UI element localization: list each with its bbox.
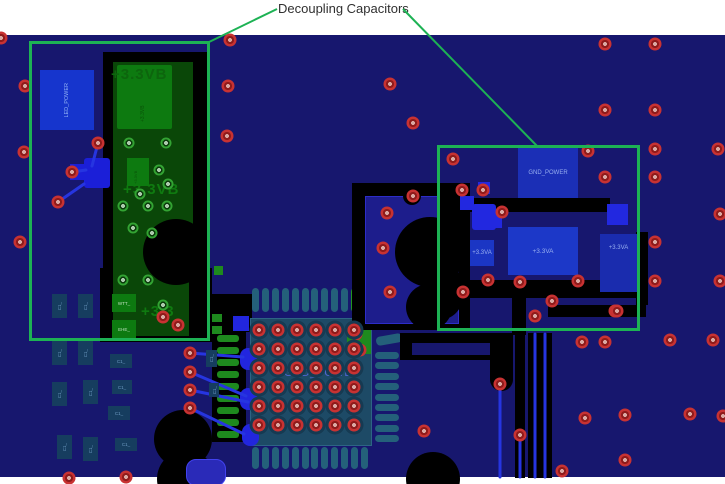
component-ref-text: C1_ (57, 349, 62, 357)
via-red (494, 378, 507, 391)
via-bga (291, 343, 304, 356)
via-red (649, 143, 662, 156)
via-red (221, 130, 234, 143)
pad-capsule (262, 288, 269, 312)
via-red (649, 104, 662, 117)
via-bga (272, 419, 285, 432)
pad-capsule (282, 447, 289, 469)
pad-capsule (321, 288, 328, 312)
via-red (684, 408, 697, 421)
via-red (714, 275, 725, 288)
channel-hbar-inner (412, 343, 496, 355)
pad-capsule (375, 373, 399, 380)
via-bga (253, 324, 266, 337)
annotation-title: Decoupling Capacitors (278, 1, 409, 16)
component-ref-label: C1_ (110, 354, 132, 368)
via-red (717, 410, 725, 423)
via-red (556, 465, 569, 478)
via-bga (310, 381, 323, 394)
pad-capsule (302, 447, 309, 469)
green-pad-a (212, 314, 222, 322)
pad-capsule (351, 447, 358, 469)
pad-capsule (375, 383, 399, 390)
via-bga (253, 362, 266, 375)
component-ref-label: C1_ (52, 341, 67, 365)
via-red (184, 402, 197, 415)
via-bga (348, 324, 361, 337)
via-red (381, 207, 394, 220)
green-bar-pad (217, 335, 239, 342)
via-bga (253, 381, 266, 394)
via-bga (310, 419, 323, 432)
pad-capsule (292, 288, 299, 312)
via-bga (272, 400, 285, 413)
via-red (63, 472, 76, 484)
pad-capsule (331, 447, 338, 469)
via-red (418, 425, 431, 438)
highlight-box-right (437, 145, 640, 331)
pad-capsule (341, 447, 348, 469)
via-bga (348, 381, 361, 394)
component-ref-text: C1_ (122, 442, 130, 447)
pad-capsule (375, 362, 399, 369)
pad-capsule (375, 404, 399, 411)
via-bga (329, 362, 342, 375)
green-bar-pad (217, 407, 239, 414)
via-bga (253, 343, 266, 356)
component-ref-label: C1_ (83, 380, 98, 404)
green-pad-c (214, 266, 223, 275)
pad-capsule (321, 447, 328, 469)
via-red (712, 143, 725, 156)
pad-capsule (262, 447, 269, 469)
pad-capsule (375, 394, 399, 401)
pad-capsule (375, 414, 399, 421)
via-red (579, 412, 592, 425)
via-bga (291, 381, 304, 394)
via-bga (348, 419, 361, 432)
via-bga (291, 362, 304, 375)
green-bar-pad (217, 431, 239, 438)
via-red (514, 429, 527, 442)
via-bga (253, 419, 266, 432)
green-bar-pad (217, 383, 239, 390)
green-bar-pad (217, 359, 239, 366)
pad-capsule (252, 288, 259, 312)
via-bga (253, 400, 266, 413)
via-red (619, 454, 632, 467)
green-bar-pad (217, 395, 239, 402)
pad-capsule (272, 447, 279, 469)
via-red (377, 242, 390, 255)
pad-capsule (311, 447, 318, 469)
component-ref-text: C1_ (62, 443, 67, 451)
pad-capsule (361, 447, 368, 469)
component-ref-label: C1_ (115, 438, 137, 451)
via-red (576, 336, 589, 349)
highlight-box-left (29, 41, 210, 341)
via-bga (291, 419, 304, 432)
pad-capsule (311, 288, 318, 312)
via-red (649, 275, 662, 288)
via-red (14, 236, 27, 249)
pad-capsule (331, 288, 338, 312)
component-ref-text: C1_ (209, 354, 214, 362)
component-ref-label: C1_ (52, 382, 67, 406)
green-bar-pad (217, 419, 239, 426)
via-red (184, 366, 197, 379)
via-red (184, 384, 197, 397)
via-red (222, 80, 235, 93)
via-red (664, 334, 677, 347)
via-bga (329, 381, 342, 394)
pad-capsule (375, 435, 399, 442)
via-red (407, 117, 420, 130)
pad-capsule (272, 288, 279, 312)
via-red (649, 236, 662, 249)
component-ref-text: C1_ (118, 385, 126, 390)
component-ref-label: C1_ (112, 380, 132, 394)
pad-capsule (252, 447, 259, 469)
via-bga (348, 400, 361, 413)
via-red (120, 471, 133, 484)
via-red (407, 190, 420, 203)
green-bar-pad (217, 371, 239, 378)
via-red (224, 34, 237, 47)
via-bga (291, 324, 304, 337)
component-ref-label: C1_ (78, 341, 93, 365)
pad-capsule (292, 447, 299, 469)
via-bga (291, 400, 304, 413)
component-ref-text: C1_ (117, 359, 125, 364)
via-bga (329, 343, 342, 356)
via-bga (272, 343, 285, 356)
via-red (649, 171, 662, 184)
pad-capsule (375, 425, 399, 432)
via-bga (329, 324, 342, 337)
component-ref-label: C1_ (206, 350, 217, 367)
component-ref-text: C1_ (88, 388, 93, 396)
via-red (714, 208, 725, 221)
via-red (649, 38, 662, 51)
via-bga (310, 362, 323, 375)
via-red (184, 347, 197, 360)
green-pad-b (212, 326, 222, 334)
blue-pad-small (233, 316, 249, 331)
component-ref-text: C1_ (57, 390, 62, 398)
component-ref-text: C1_ (88, 445, 93, 453)
via-bga (310, 324, 323, 337)
component-ref-text: C1_ (115, 411, 123, 416)
pcb-annotation-screenshot: Decoupling Capacitors +3.3VB +3.3VB +3.3… (0, 0, 725, 484)
via-bga (272, 362, 285, 375)
pad-capsule (282, 288, 289, 312)
component-ref-label: C1_ (108, 406, 130, 420)
via-bga (272, 381, 285, 394)
via-bga (348, 362, 361, 375)
component-ref-label: C1_ (83, 437, 98, 461)
via-red (707, 334, 720, 347)
via-red (384, 78, 397, 91)
blue-blob (186, 459, 226, 484)
green-bar-pad (217, 347, 239, 354)
channel-v2 (528, 333, 552, 478)
channel-v1 (515, 333, 525, 478)
via-red (619, 409, 632, 422)
pad-capsule (375, 352, 399, 359)
via-bga (310, 343, 323, 356)
via-red (384, 286, 397, 299)
pad-capsule (341, 288, 348, 312)
via-bga (329, 419, 342, 432)
component-ref-label: C1_ (209, 383, 219, 397)
via-red (599, 104, 612, 117)
component-ref-text: C1_ (83, 349, 88, 357)
pad-capsule (302, 288, 309, 312)
via-red (599, 336, 612, 349)
component-ref-label: C1_ (57, 435, 72, 459)
component-ref-text: C1_ (212, 386, 217, 394)
via-bga (272, 324, 285, 337)
via-red (599, 38, 612, 51)
via-bga (310, 400, 323, 413)
via-bga (329, 400, 342, 413)
via-bga (348, 343, 361, 356)
